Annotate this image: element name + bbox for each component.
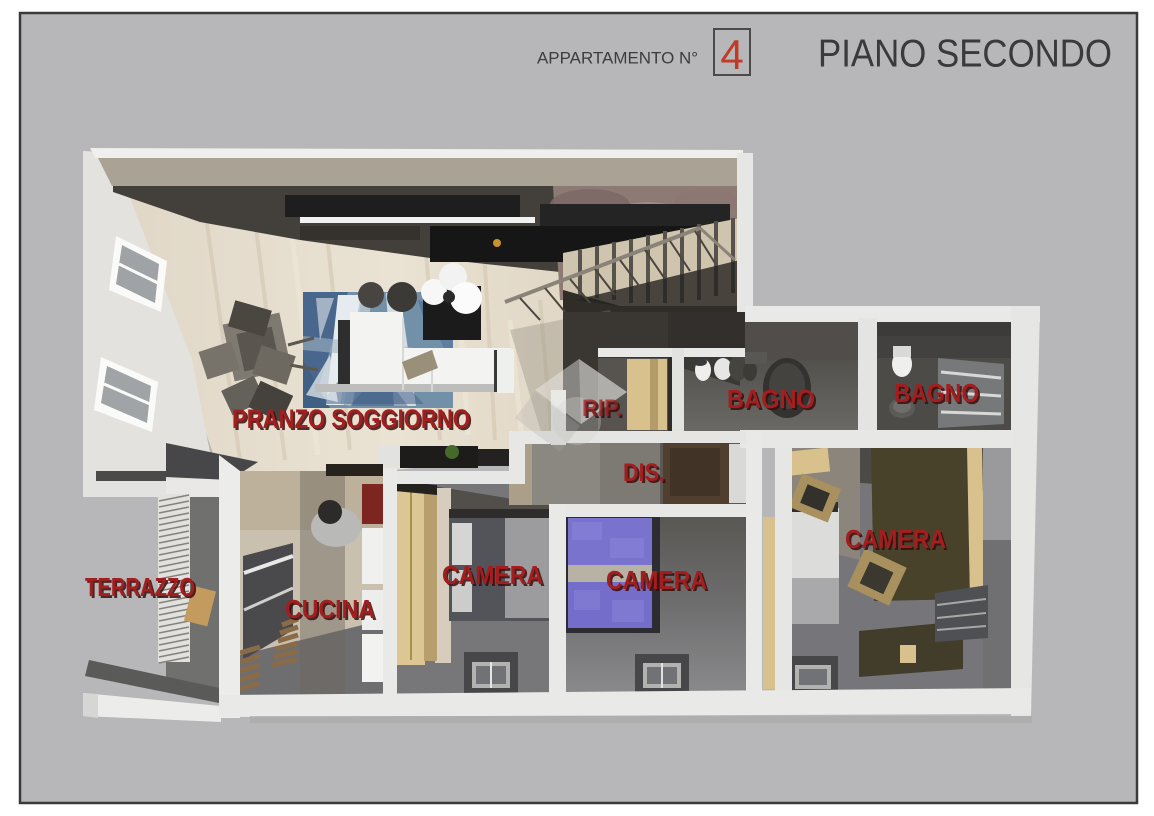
svg-text:4: 4 xyxy=(720,31,743,78)
svg-text:CUCINA: CUCINA xyxy=(285,594,375,624)
svg-text:CAMERA: CAMERA xyxy=(442,560,543,590)
svg-text:DIS.: DIS. xyxy=(623,459,665,487)
svg-text:APPARTAMENTO N°: APPARTAMENTO N° xyxy=(537,49,698,68)
svg-text:BAGNO: BAGNO xyxy=(894,378,979,408)
svg-text:BAGNO: BAGNO xyxy=(727,384,815,414)
svg-text:CAMERA: CAMERA xyxy=(606,565,707,595)
svg-text:PIANO SECONDO: PIANO SECONDO xyxy=(818,33,1112,76)
svg-text:PRANZO SOGGIORNO: PRANZO SOGGIORNO xyxy=(232,404,470,434)
svg-text:TERRAZZO: TERRAZZO xyxy=(85,572,195,602)
svg-text:RIP.: RIP. xyxy=(582,395,622,422)
svg-text:CAMERA: CAMERA xyxy=(845,524,946,554)
